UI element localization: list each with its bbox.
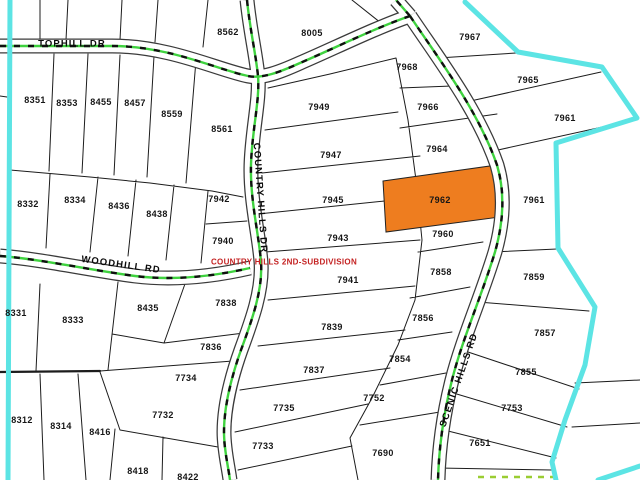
- parcel-label-8333: 8333: [62, 315, 84, 325]
- parcel-label-7651: 7651: [469, 438, 491, 448]
- parcel-label-7733: 7733: [252, 441, 274, 451]
- parcel-label-7967: 7967: [459, 32, 481, 42]
- parcel-label-7753: 7753: [501, 403, 523, 413]
- parcel-label-8312: 8312: [11, 415, 33, 425]
- parcel-label-7947: 7947: [320, 150, 342, 160]
- parcel-label-7960: 7960: [432, 229, 454, 239]
- parcel-label-7964: 7964: [426, 144, 448, 154]
- parcel-label-8436: 8436: [108, 201, 130, 211]
- parcel-label-7690: 7690: [372, 448, 394, 458]
- parcel-label-8332: 8332: [17, 199, 39, 209]
- parcel-label-7735: 7735: [273, 403, 295, 413]
- parcel-label-7961: 7961: [554, 113, 576, 123]
- parcel-label-7857: 7857: [534, 328, 556, 338]
- parcel-label-8314: 8314: [50, 421, 72, 431]
- parcel-label-7941: 7941: [337, 275, 359, 285]
- parcel-label-7949: 7949: [308, 102, 330, 112]
- parcel-label-8457: 8457: [124, 98, 146, 108]
- parcel-label-7732: 7732: [152, 410, 174, 420]
- parcel-label-7962[interactable]: 7962: [429, 195, 451, 205]
- parcel-label-8005: 8005: [301, 28, 323, 38]
- parcel-label-7940: 7940: [212, 236, 234, 246]
- parcel-label-8418: 8418: [127, 466, 149, 476]
- parcel-label-7858: 7858: [430, 267, 452, 277]
- parcel-label-8351: 8351: [24, 95, 46, 105]
- parcel-label-7945: 7945: [322, 195, 344, 205]
- road-label-tophill-dr: TOPHILL DR: [38, 39, 106, 50]
- parcel-label-7836: 7836: [200, 342, 222, 352]
- parcel-label-7839: 7839: [321, 322, 343, 332]
- parcel-label-8559: 8559: [161, 109, 183, 119]
- road-label-woodhill-rd: WOODHILL RD: [81, 254, 162, 276]
- parcel-label-8331: 8331: [5, 308, 27, 318]
- parcel-label-7734: 7734: [175, 373, 197, 383]
- parcel-label-8561: 8561: [211, 124, 233, 134]
- plat-map: COUNTRY HILLS 2ND-SUBDIVISION 8351835384…: [0, 0, 640, 480]
- parcel-label-8455: 8455: [90, 97, 112, 107]
- parcel-label-7855: 7855: [515, 367, 537, 377]
- parcel-label-7942: 7942: [208, 194, 230, 204]
- parcel-label-7943: 7943: [327, 233, 349, 243]
- parcel-label-7856: 7856: [412, 313, 434, 323]
- parcel-label-7965: 7965: [517, 75, 539, 85]
- parcel-label-8422: 8422: [177, 472, 199, 480]
- parcel-label-8562: 8562: [217, 27, 239, 37]
- map-labels: COUNTRY HILLS 2ND-SUBDIVISION 8351835384…: [0, 0, 640, 480]
- parcel-label-7966: 7966: [417, 102, 439, 112]
- parcel-label-7859: 7859: [523, 272, 545, 282]
- parcel-label-8353: 8353: [56, 98, 78, 108]
- parcel-label-8334: 8334: [64, 195, 86, 205]
- parcel-label-8416: 8416: [89, 427, 111, 437]
- parcel-label-7854: 7854: [389, 354, 411, 364]
- subdivision-label: COUNTRY HILLS 2ND-SUBDIVISION: [211, 258, 357, 267]
- parcel-label-7968: 7968: [396, 62, 418, 72]
- parcel-label-7837: 7837: [303, 365, 325, 375]
- parcel-label-8438: 8438: [146, 209, 168, 219]
- parcel-label-7752: 7752: [363, 393, 385, 403]
- road-label-scenic-hills-rd: SCENIC HILLS RD: [438, 331, 481, 428]
- parcel-label-8435: 8435: [137, 303, 159, 313]
- parcel-label-7838: 7838: [215, 298, 237, 308]
- parcel-label-7961: 7961: [523, 195, 545, 205]
- road-label-country-hills-dr: COUNTRY HILLS DR: [251, 143, 270, 254]
